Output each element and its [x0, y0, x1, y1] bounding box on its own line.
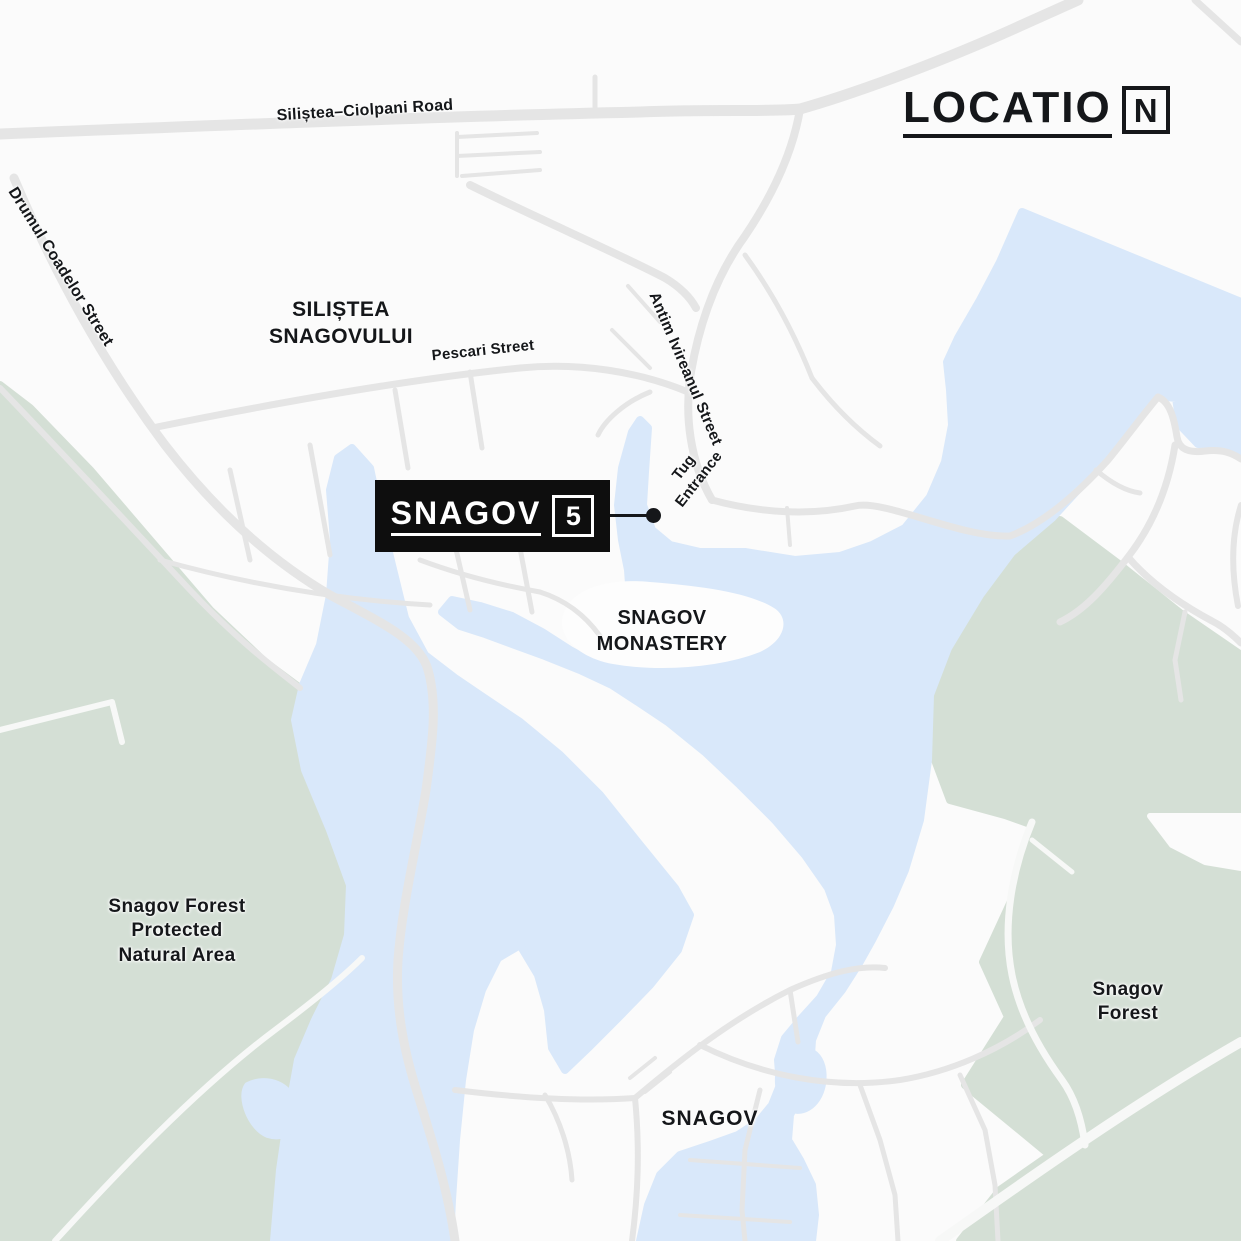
label-line: SILIȘTEA [241, 297, 441, 324]
area-label-snagov-monastery: SNAGOV MONASTERY [562, 606, 762, 657]
label-line: Protected [77, 919, 277, 943]
label-line: Forest [1048, 1002, 1208, 1026]
label-line: SNAGOV [562, 606, 762, 632]
area-label-silistea-snagovului: SILIȘTEA SNAGOVULUI [241, 297, 441, 351]
area-label-snagov-forest-protected: Snagov Forest Protected Natural Area [77, 895, 277, 968]
page-title: LOCATIO N [903, 86, 1170, 138]
north-grid-streets [457, 77, 595, 176]
label-line: Snagov Forest [77, 895, 277, 919]
area-label-snagov-forest: Snagov Forest [1048, 978, 1208, 1027]
label-line: Natural Area [77, 944, 277, 968]
project-badge: SNAGOV 5 [375, 480, 610, 552]
label-line: SNAGOV [610, 1106, 810, 1133]
badge-leader-line [610, 514, 650, 517]
road-stub [1096, 470, 1140, 493]
area-label-snagov-town: SNAGOV [610, 1106, 810, 1133]
label-line: Snagov [1048, 978, 1208, 1002]
corner-road-path [1195, 0, 1241, 42]
page-title-text: LOCATIO [903, 86, 1112, 138]
label-line: MONASTERY [562, 632, 762, 658]
map-canvas: LOCATIO N SNAGOV 5 SILIȘTEA SNAGOVULUI S… [0, 0, 1241, 1241]
project-badge-number: 5 [552, 495, 594, 537]
north-indicator: N [1122, 86, 1170, 134]
east-edge-road [1233, 505, 1241, 606]
project-badge-name: SNAGOV [391, 497, 542, 536]
label-line: SNAGOVULUI [241, 324, 441, 351]
